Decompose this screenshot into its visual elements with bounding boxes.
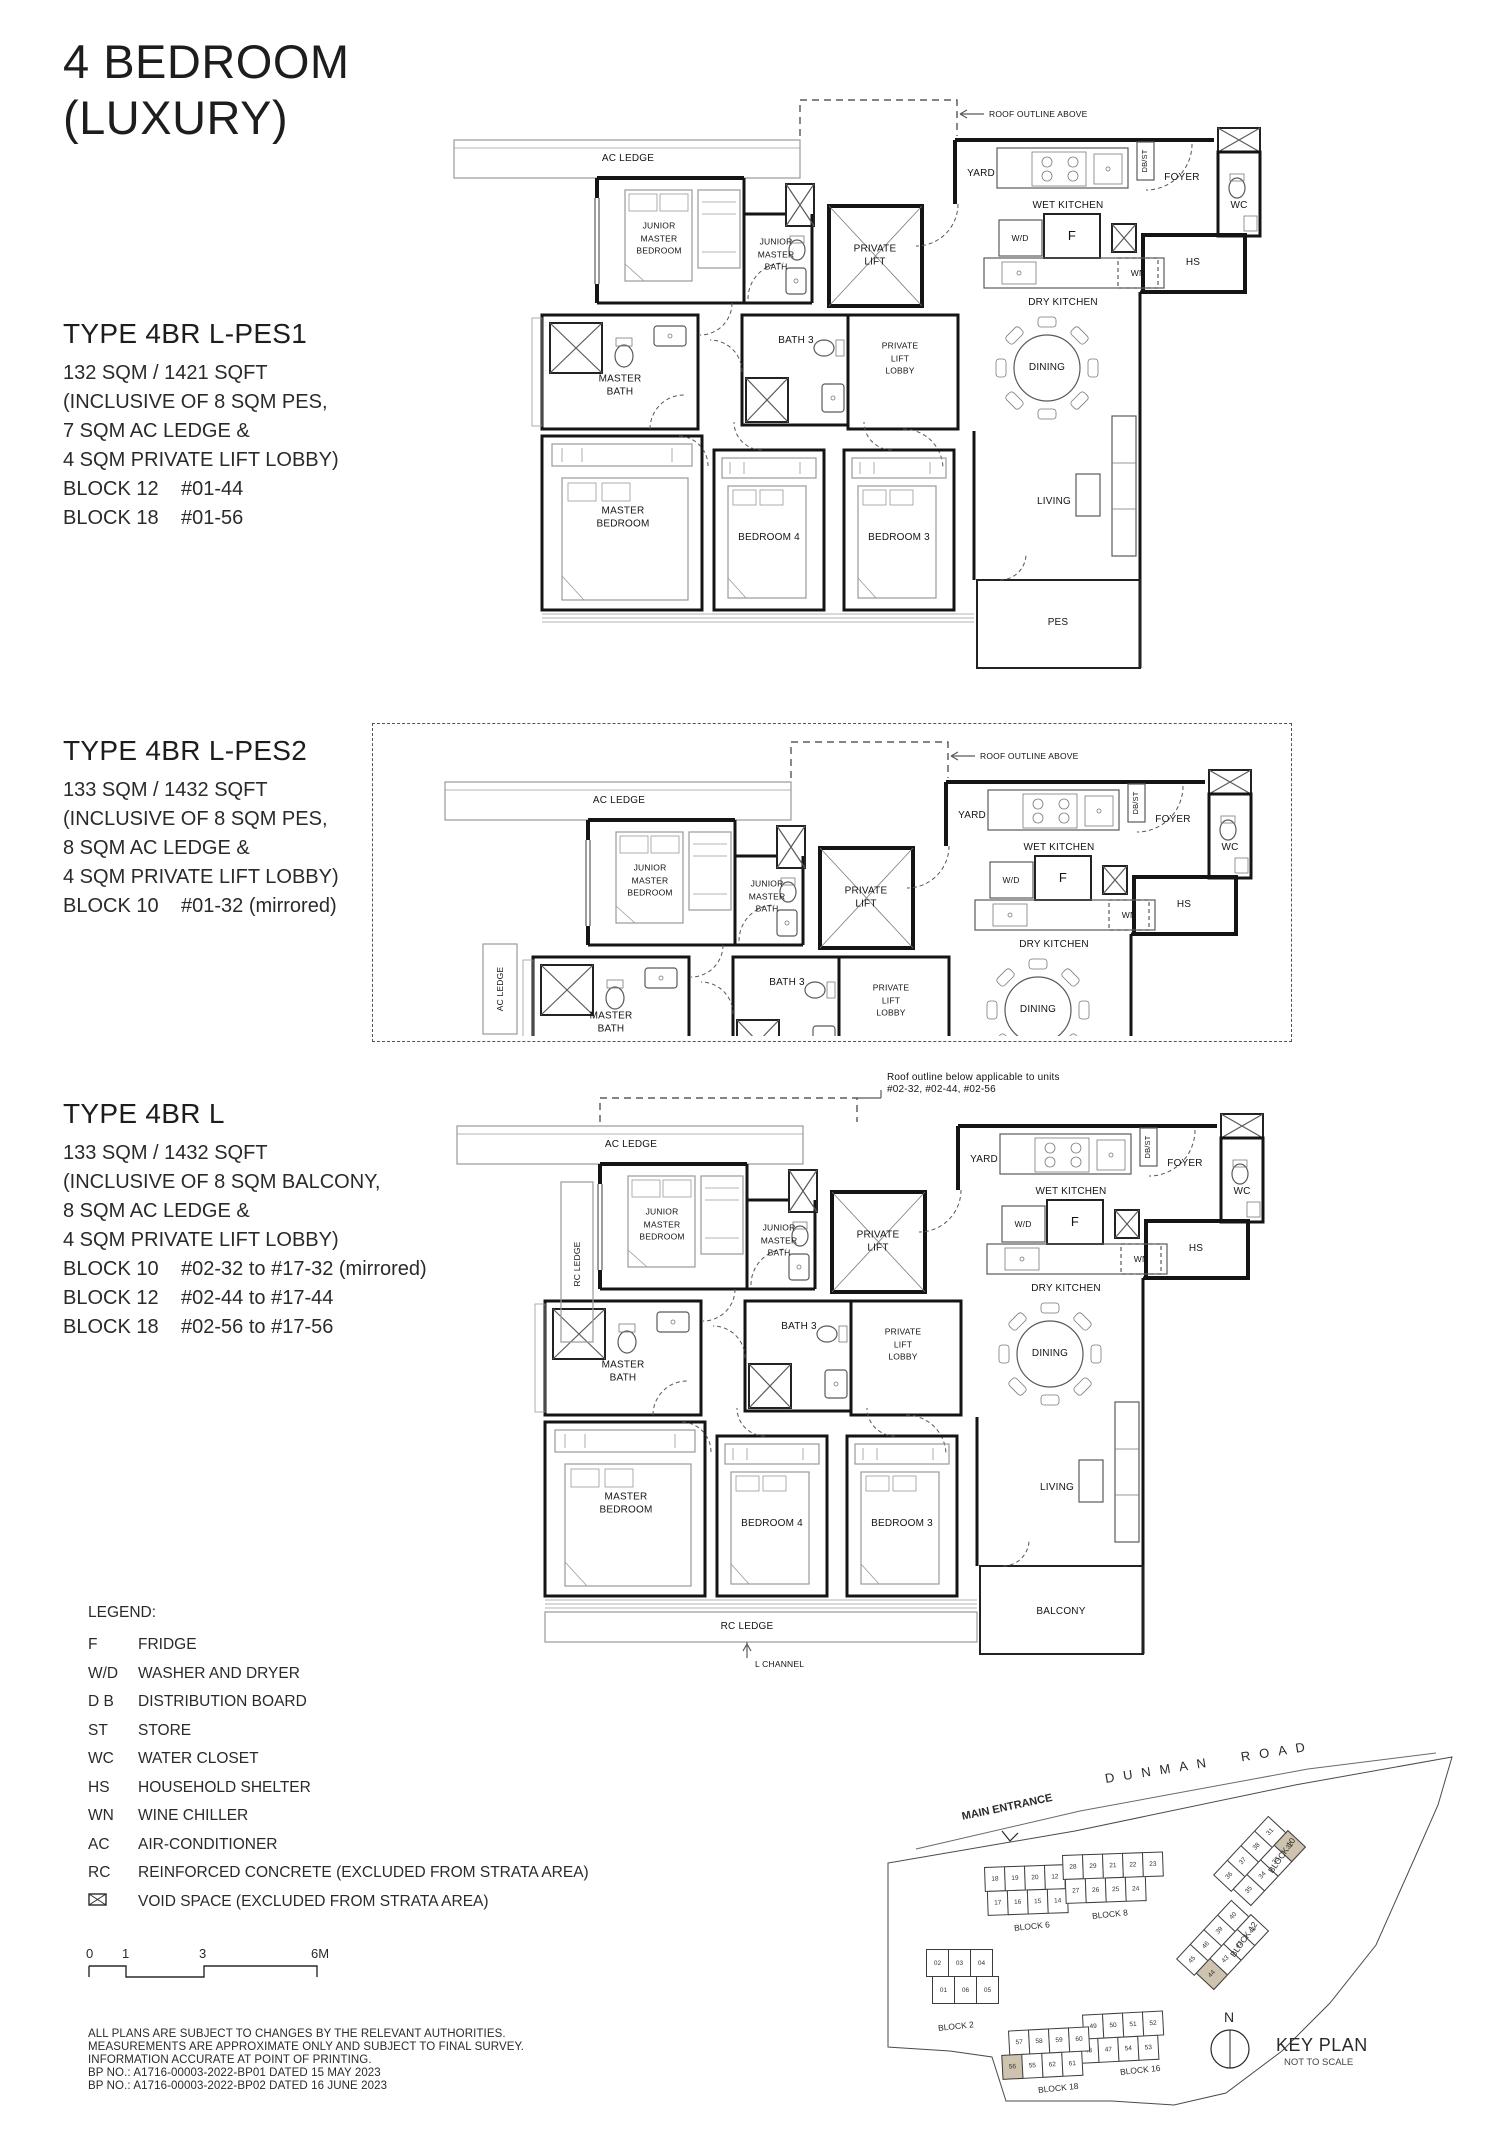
- unit-square: 26: [1085, 1877, 1107, 1903]
- page-title: 4 BEDROOM (LUXURY): [63, 34, 350, 146]
- unit-square: 51: [1122, 2011, 1144, 2037]
- type-inclusions: (INCLUSIVE OF 8 SQM PES, 8 SQM AC LEDGE …: [63, 805, 339, 892]
- unit-square: 55: [1021, 2053, 1043, 2079]
- unit-square: 59: [1048, 2027, 1070, 2053]
- type-inclusions: (INCLUSIVE OF 8 SQM BALCONY, 8 SQM AC LE…: [63, 1168, 427, 1255]
- block-name: BLOCK 12: [63, 475, 181, 504]
- key-plan-block-8: 28 29 21 22 23 27 26 25 24: [1062, 1852, 1164, 1903]
- legend-key: F: [88, 1636, 138, 1654]
- unit-square: 60: [1068, 2026, 1090, 2052]
- legend-key: AC: [88, 1836, 138, 1854]
- scale-tick: 0: [86, 1946, 93, 1961]
- compass-n-label: N: [1224, 2009, 1234, 2025]
- block-units-row: BLOCK 12 #01-44: [63, 475, 339, 504]
- unit-square: 24: [1125, 1876, 1147, 1902]
- legend-label: DISTRIBUTION BOARD: [138, 1693, 307, 1711]
- void-space-icon: [88, 1893, 138, 1911]
- unit-square: 25: [1105, 1877, 1127, 1903]
- block-units-row: BLOCK 10 #01-32 (mirrored): [63, 892, 339, 921]
- legend-row-void: VOID SPACE (EXCLUDED FROM STRATA AREA): [88, 1892, 589, 1912]
- block-units-row: BLOCK 10 #02-32 to #17-32 (mirrored): [63, 1255, 427, 1284]
- floorplan-type-4br-l: AC LEDGE Roof outline below applicable t…: [395, 1072, 1295, 1690]
- unit-square: 62: [1041, 2052, 1063, 2078]
- legend-key: HS: [88, 1779, 138, 1797]
- entrance-arrow: [1002, 1831, 1018, 1841]
- legend: LEGEND: F FRIDGE W/D WASHER AND DRYER D …: [88, 1604, 589, 1920]
- unit-square: 52: [1142, 2010, 1164, 2036]
- type-title: TYPE 4BR L: [63, 1098, 427, 1130]
- block-units: #02-32 to #17-32 (mirrored): [181, 1255, 427, 1284]
- legend-row: ST STORE: [88, 1721, 589, 1741]
- unit-square: 53: [1137, 2035, 1159, 2061]
- legend-label: WINE CHILLER: [138, 1807, 248, 1825]
- block-name: BLOCK 18: [63, 504, 181, 533]
- legend-label: AIR-CONDITIONER: [138, 1836, 278, 1854]
- block-name: BLOCK 18: [63, 1313, 181, 1342]
- block-units-row: BLOCK 12 #02-44 to #17-44: [63, 1284, 427, 1313]
- block-units-row: BLOCK 18 #02-56 to #17-56: [63, 1313, 427, 1342]
- legend-key: ST: [88, 1722, 138, 1740]
- key-plan-map: [880, 1745, 1480, 2145]
- unit-square: 23: [1142, 1851, 1164, 1877]
- legend-row: W/D WASHER AND DRYER: [88, 1664, 589, 1684]
- legend-key: RC: [88, 1864, 138, 1882]
- block-units: #01-32 (mirrored): [181, 892, 337, 921]
- type-area: 132 SQM / 1421 SQFT: [63, 359, 339, 388]
- legend-row: WN WINE CHILLER: [88, 1806, 589, 1826]
- unit-square: 22: [1122, 1852, 1144, 1878]
- key-plan-block-2: 02 03 04 01 06 05: [926, 1949, 998, 2003]
- unit-square: 20: [1024, 1865, 1046, 1891]
- unit-square: 19: [1004, 1866, 1026, 1892]
- unit-square: 54: [1117, 2036, 1139, 2062]
- unit-square: 57: [1008, 2029, 1030, 2055]
- legend-label: REINFORCED CONCRETE (EXCLUDED FROM STRAT…: [138, 1864, 589, 1882]
- spec-type-4br-l: TYPE 4BR L 133 SQM / 1432 SQFT (INCLUSIV…: [63, 1098, 427, 1342]
- unit-square: 02: [926, 1949, 949, 1977]
- key-plan-heading: KEY PLAN: [1276, 2035, 1368, 2056]
- spec-type-4br-l-pes1: TYPE 4BR L-PES1 132 SQM / 1421 SQFT (INC…: [63, 318, 339, 533]
- type-area: 133 SQM / 1432 SQFT: [63, 776, 339, 805]
- legend-label: FRIDGE: [138, 1636, 197, 1654]
- scale-tick: 3: [199, 1946, 206, 1961]
- type-title: TYPE 4BR L-PES2: [63, 735, 339, 767]
- type-area: 133 SQM / 1432 SQFT: [63, 1139, 427, 1168]
- disclaimer-text: ALL PLANS ARE SUBJECT TO CHANGES BY THE …: [88, 2028, 524, 2093]
- unit-square: 28: [1062, 1854, 1084, 1880]
- legend-row: D B DISTRIBUTION BOARD: [88, 1692, 589, 1712]
- scale-bar: 0 1 3 6M: [86, 1946, 346, 1982]
- block-units-row: BLOCK 18 #01-56: [63, 504, 339, 533]
- block-units: #01-44: [181, 475, 243, 504]
- unit-square: 05: [976, 1976, 999, 2004]
- legend-row: HS HOUSEHOLD SHELTER: [88, 1778, 589, 1798]
- legend-row: F FRIDGE: [88, 1635, 589, 1655]
- scale-bar-line: [89, 1966, 317, 1977]
- floorplan-type-4br-l-pes2: AC LEDGE ROOF OUTLINE ABOVE AC LEDGE YAR…: [372, 723, 1292, 1042]
- unit-square: 50: [1102, 2013, 1124, 2039]
- unit-square: 61: [1061, 2051, 1083, 2077]
- block-units: #02-56 to #17-56: [181, 1313, 333, 1342]
- unit-square-highlighted: 56: [1001, 2054, 1023, 2080]
- unit-square: 27: [1065, 1878, 1087, 1904]
- legend-row: AC AIR-CONDITIONER: [88, 1835, 589, 1855]
- legend-label: HOUSEHOLD SHELTER: [138, 1779, 311, 1797]
- legend-label: VOID SPACE (EXCLUDED FROM STRATA AREA): [138, 1893, 489, 1911]
- block-name: BLOCK 12: [63, 1284, 181, 1313]
- unit-square: 58: [1028, 2028, 1050, 2054]
- unit-square: 06: [954, 1976, 977, 2004]
- legend-key: W/D: [88, 1665, 138, 1683]
- block-name: BLOCK 10: [63, 892, 181, 921]
- legend-label: STORE: [138, 1722, 191, 1740]
- scale-tick: 1: [122, 1946, 129, 1961]
- type-inclusions: (INCLUSIVE OF 8 SQM PES, 7 SQM AC LEDGE …: [63, 388, 339, 475]
- legend-label: WATER CLOSET: [138, 1750, 259, 1768]
- legend-key: WC: [88, 1750, 138, 1768]
- key-plan-subheading: NOT TO SCALE: [1284, 2057, 1353, 2068]
- unit-square: 01: [932, 1976, 955, 2004]
- scale-tick: 6M: [311, 1946, 329, 1961]
- unit-square: 15: [1027, 1889, 1049, 1915]
- legend-label: WASHER AND DRYER: [138, 1665, 300, 1683]
- unit-square: 47: [1097, 2037, 1119, 2063]
- key-plan: MAIN ENTRANCE DUNMAN ROAD N KEY PLAN NOT…: [880, 1745, 1480, 2145]
- legend-row: WC WATER CLOSET: [88, 1749, 589, 1769]
- block-units: #02-44 to #17-44: [181, 1284, 333, 1313]
- type-title: TYPE 4BR L-PES1: [63, 318, 339, 350]
- block-name: BLOCK 10: [63, 1255, 181, 1284]
- unit-square: 21: [1102, 1853, 1124, 1879]
- legend-key: WN: [88, 1807, 138, 1825]
- unit-square: 18: [984, 1866, 1006, 1892]
- unit-square: 03: [948, 1949, 971, 1977]
- unit-square: 29: [1082, 1854, 1104, 1880]
- brochure-page: 4 BEDROOM (LUXURY) TYPE 4BR L-PES1 132 S…: [0, 0, 1485, 2153]
- block-units: #01-56: [181, 504, 243, 533]
- unit-square: 04: [970, 1949, 993, 1977]
- spec-type-4br-l-pes2: TYPE 4BR L-PES2 133 SQM / 1432 SQFT (INC…: [63, 735, 339, 921]
- floorplan-type-4br-l-pes1: AC LEDGE ROOF OUTLINE ABOVE YARD DB/ST F…: [392, 86, 1292, 681]
- key-plan-block-18: 57 58 59 60 56 55 62 61: [1000, 2026, 1090, 2079]
- unit-square: 16: [1007, 1889, 1029, 1915]
- legend-row: RC REINFORCED CONCRETE (EXCLUDED FROM ST…: [88, 1863, 589, 1883]
- legend-key: D B: [88, 1693, 138, 1711]
- unit-square: 17: [987, 1890, 1009, 1916]
- legend-heading: LEGEND:: [88, 1604, 589, 1622]
